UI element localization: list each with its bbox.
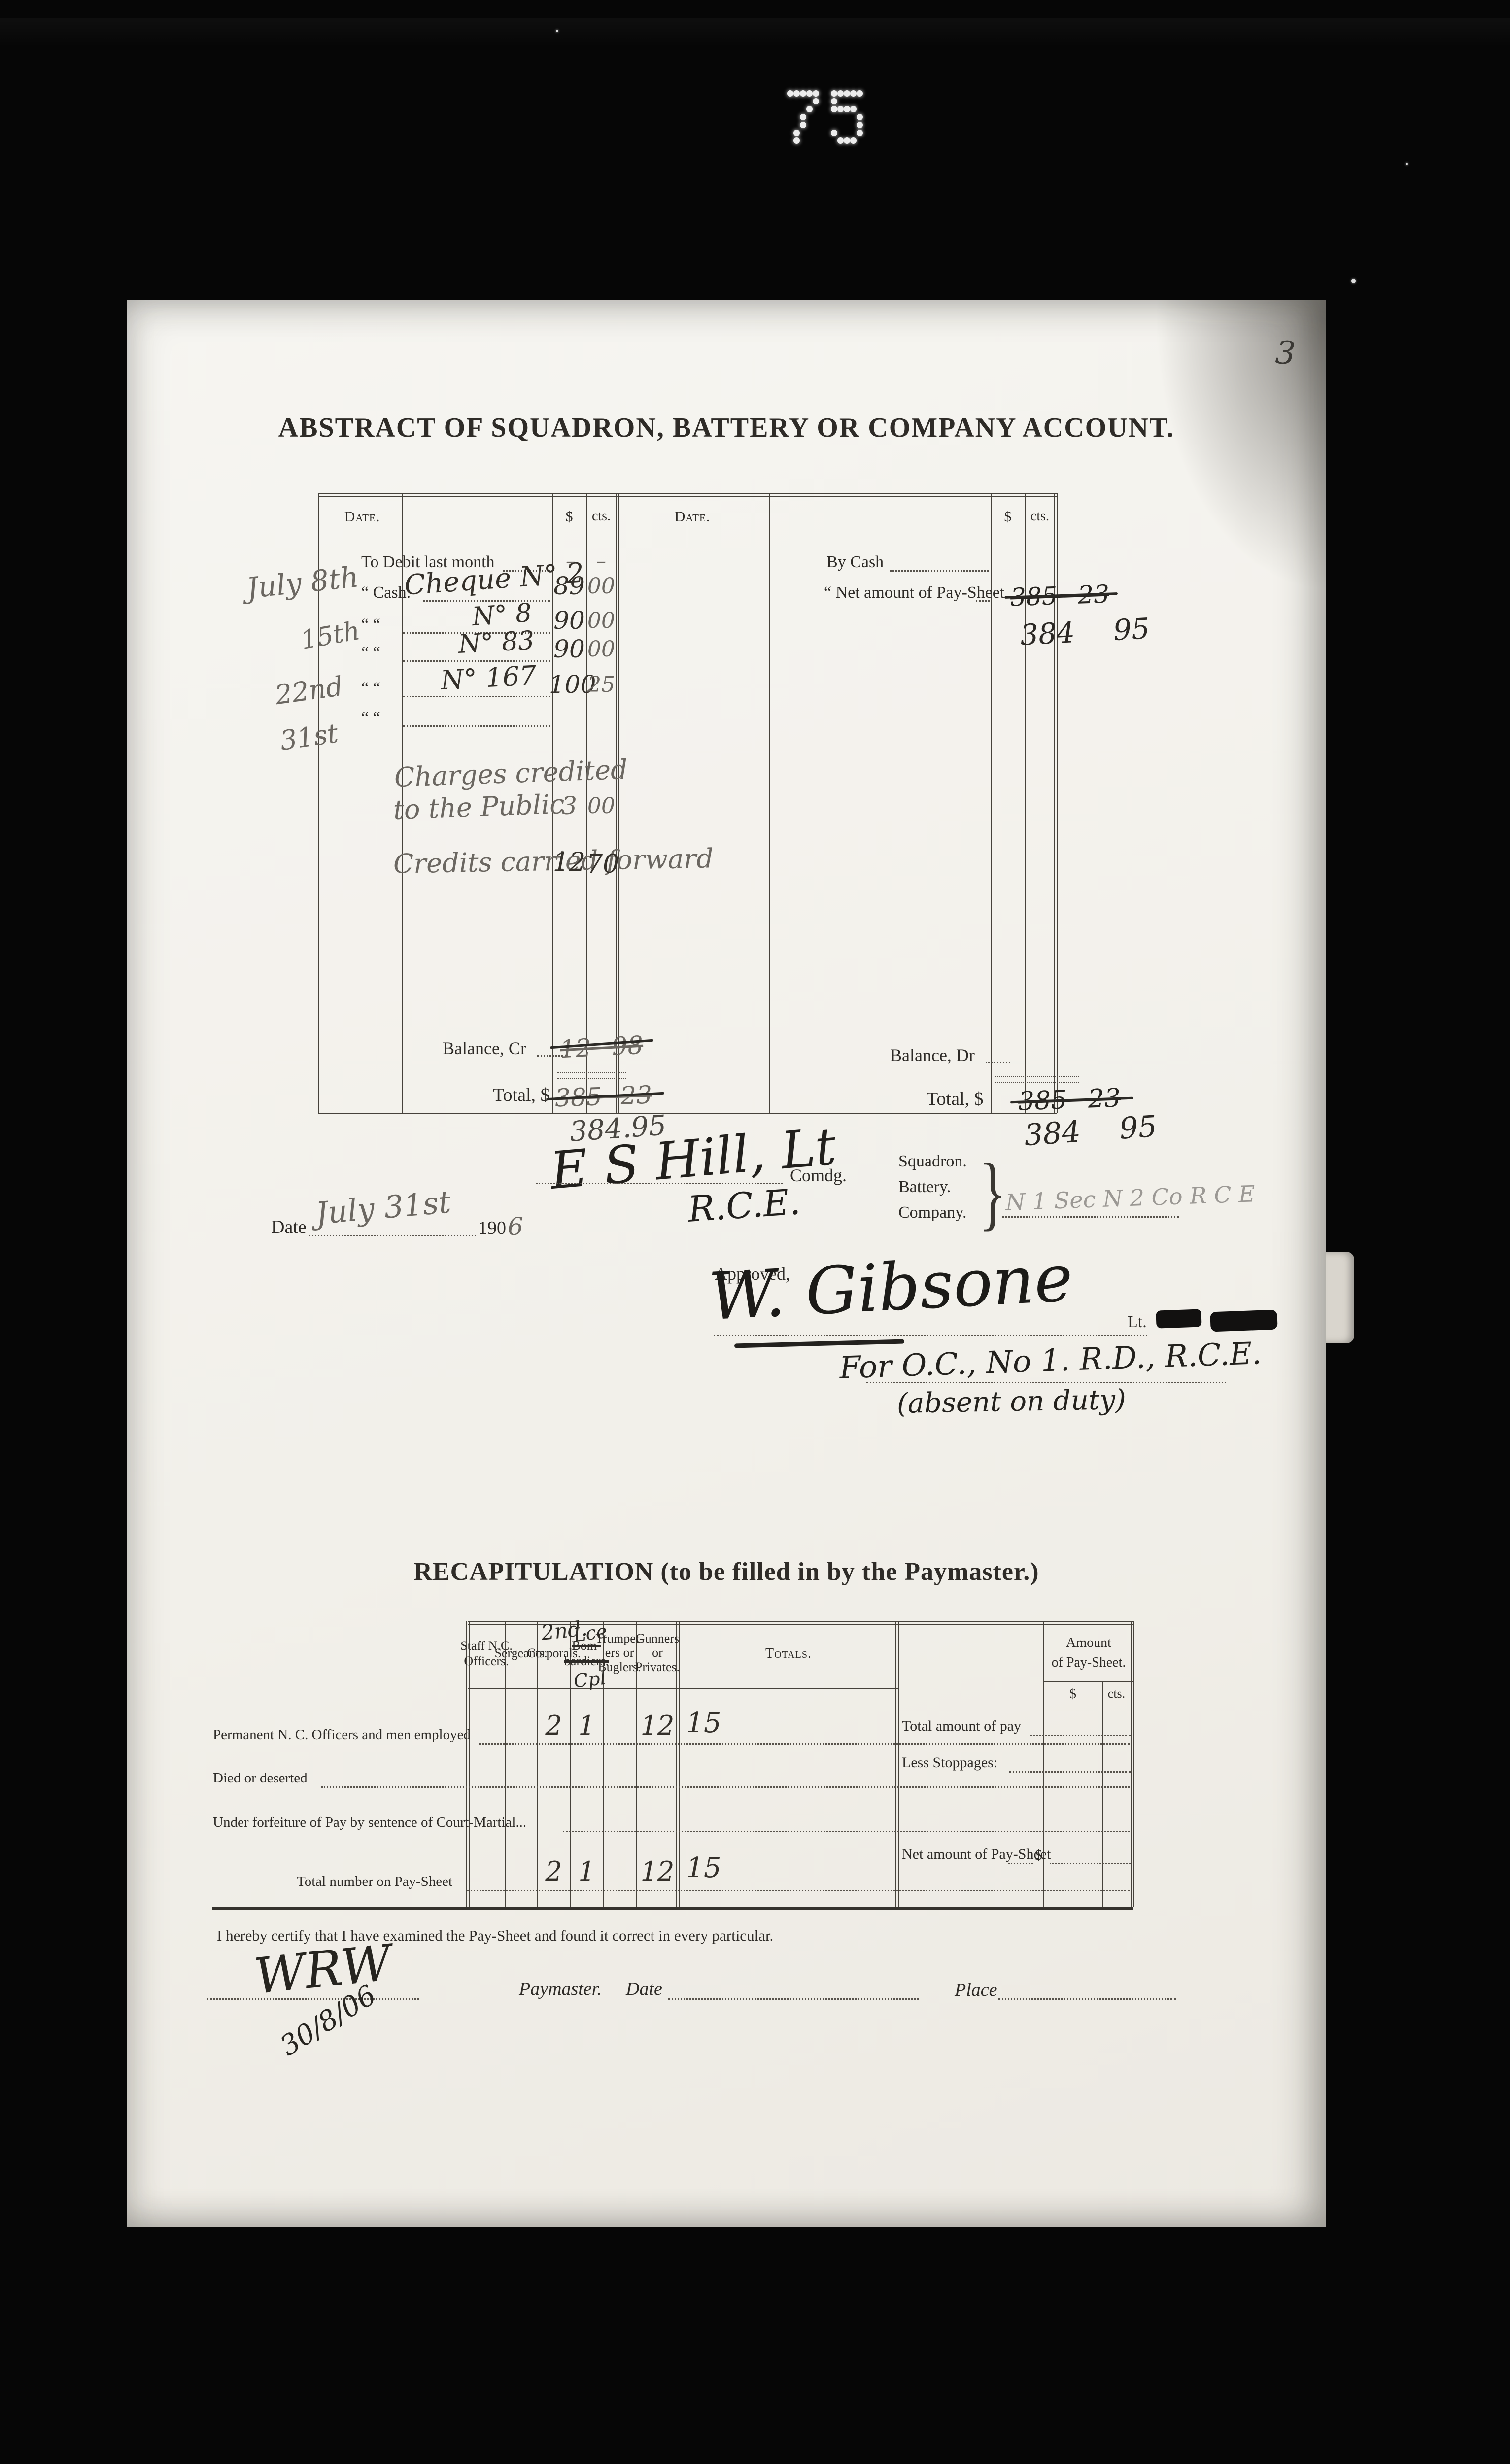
recap-row-label: Total number on Pay-Sheet [297, 1874, 452, 1890]
signature-line [714, 1335, 1147, 1336]
table-rule [1102, 1681, 1103, 1907]
leader-dots [1050, 1863, 1131, 1864]
recap-row-label: Under forfeiture of Pay by sentence of C… [213, 1814, 526, 1831]
signature-line [536, 1183, 783, 1184]
leader-dots [986, 1062, 1010, 1063]
leader-dots [403, 696, 550, 697]
recap-title: RECAPITULATION (to be filled in by the P… [127, 1557, 1326, 1586]
net-amount-label: Net amount of Pay-Sheet [902, 1846, 1051, 1863]
year-written: 6 [508, 1212, 523, 1241]
debit-row-dollar: 90 [552, 606, 586, 635]
total-pay-label: Total amount of pay [902, 1718, 1021, 1735]
total-rule [557, 1072, 626, 1079]
date-written: July 31st [314, 1184, 452, 1232]
entry-date: 15th [299, 616, 362, 655]
debit-row-label: “ Cash. [361, 583, 411, 602]
account-title: ABSTRACT OF SQUADRON, BATTERY OR COMPANY… [127, 412, 1326, 444]
charges-credited-line2: to the Public [393, 788, 565, 825]
debit-balance-label: Balance, Cr [443, 1038, 526, 1059]
leader-dots [1002, 1216, 1179, 1218]
debit-row-dollar: 89 [552, 572, 586, 600]
charges-cts: 00 [586, 793, 616, 819]
film-streak [0, 18, 1510, 47]
credit-balance-label: Balance, Dr [890, 1045, 975, 1065]
document-page: 3 ABSTRACT OF SQUADRON, BATTERY OR COMPA… [127, 300, 1326, 2227]
debit-row-label: “ “ [361, 644, 380, 662]
leader-dots [668, 1998, 919, 2000]
brace-label-battery: Battery. [898, 1178, 951, 1197]
brace-glyph: } [979, 1145, 1006, 1240]
debit-row-dollar: 90 [552, 635, 586, 663]
recap-row-label: Permanent N. C. Officers and men employe… [213, 1727, 471, 1743]
place-label: Place [955, 1979, 997, 2001]
entry-date: July 8th [245, 560, 360, 605]
leader-dots [890, 570, 989, 572]
unit-script: R.C.E. [686, 1181, 801, 1230]
table-rule [895, 1621, 896, 1907]
page-number: 3 [1274, 335, 1297, 372]
recap-value-corporals: 2 [537, 1856, 570, 1887]
total-rule [995, 1076, 1079, 1083]
table-rule [769, 493, 770, 1113]
debit-row-written: N° 83 [458, 626, 535, 659]
leader-dots [321, 1786, 1130, 1788]
recap-value-corporals: 2 [537, 1710, 570, 1741]
col-header-gunners: Gunners or Privates. [625, 1631, 689, 1674]
debit-row-label: “ “ [361, 616, 380, 634]
leader-dots [998, 1998, 1176, 2000]
leader-dots [309, 1235, 476, 1236]
leader-dots [563, 1831, 1130, 1832]
recap-row-label: Died or deserted [213, 1770, 308, 1786]
less-stoppages-label: Less Stoppages: [902, 1754, 997, 1771]
recap-value-bombardiers: 1 [570, 1710, 603, 1741]
brace-label-company: Company. [898, 1203, 967, 1222]
debit-row-written: N° 167 [440, 660, 537, 696]
approver-signature: W. Gibsone [707, 1240, 1074, 1335]
table-rule [1043, 1681, 1133, 1682]
table-rule [318, 1113, 1057, 1114]
debit-row-label: “ “ [361, 679, 380, 698]
debit-row-label: “ “ [361, 709, 380, 727]
recap-value-gunners: 12 [636, 1710, 679, 1741]
credit-total-label: Total, $ [927, 1088, 984, 1110]
debit-row-cts: 25 [586, 672, 616, 697]
leader-dots [866, 1382, 1226, 1383]
recap-value-gunners: 12 [636, 1856, 679, 1887]
amount-dollar-header: $ [1043, 1686, 1102, 1702]
charges-credited-line1: Charges credited [394, 754, 628, 793]
entry-date: 22nd [273, 671, 344, 711]
debit-row-cts: – [591, 550, 611, 573]
paymaster-label: Paymaster. [519, 1978, 602, 2000]
brace-label-squadron: Squadron. [898, 1152, 967, 1171]
debit-cts-header: cts. [586, 509, 616, 524]
film-speck [1406, 163, 1408, 165]
leader-dots [479, 1743, 1130, 1745]
credit-net-revised: 384 95 [1019, 612, 1150, 652]
debit-row-cts: 00 [586, 574, 616, 599]
absent-note: (absent on duty) [896, 1384, 1126, 1420]
film-speck [556, 30, 558, 32]
date-label: Date [271, 1216, 307, 1238]
col-header-totals: Totals. [754, 1646, 823, 1662]
amount-header: Amount of Pay-Sheet. [1044, 1633, 1133, 1673]
amount-cts-header: cts. [1102, 1686, 1131, 1701]
debit-row-cts: 00 [586, 608, 616, 633]
certify-text: I hereby certify that I have examined th… [217, 1927, 773, 1945]
leader-dots [467, 1890, 1130, 1891]
credit-cts-header: cts. [1025, 509, 1055, 524]
recap-value-totals: 15 [679, 1852, 728, 1884]
pen-stroke [734, 1339, 904, 1348]
redaction-mark [1156, 1309, 1201, 1328]
leader-dots [403, 725, 550, 727]
credit-net-label: “ Net amount of Pay-Sheet [824, 583, 1004, 602]
credit-date-header: Date. [663, 509, 722, 525]
film-speck [1351, 279, 1356, 283]
table-rule [616, 493, 617, 1113]
debit-total-label: Total, $ [493, 1084, 550, 1106]
charges-dollar: 3 [552, 791, 586, 820]
leader-dots [1008, 1863, 1033, 1864]
net-amount-dollar-sign: $ [1035, 1847, 1042, 1864]
credit-dollar-header: $ [991, 509, 1025, 525]
leader-dots [976, 600, 990, 602]
credits-cts: 70 [586, 850, 616, 879]
date-label: Date [626, 1978, 662, 2000]
table-rule [212, 1907, 1133, 1910]
credit-total-revised: 384 95 [1023, 1109, 1158, 1153]
frame-number [787, 90, 866, 149]
recap-value-totals: 15 [679, 1707, 728, 1739]
lance-written-bottom: Cpl [573, 1667, 607, 1692]
debit-row-dollar: 100 [549, 670, 588, 699]
leader-dots [1030, 1735, 1131, 1736]
redaction-mark [1210, 1310, 1277, 1332]
microfilm-frame: 3 ABSTRACT OF SQUADRON, BATTERY OR COMPA… [0, 0, 1510, 2464]
leader-dots [1009, 1771, 1131, 1773]
table-rule [318, 493, 1057, 494]
debit-date-header: Date. [333, 509, 392, 525]
debit-row-cts: 00 [586, 637, 616, 662]
entry-date: 31st [278, 718, 340, 756]
page-tab [1324, 1252, 1354, 1343]
debit-dollar-header: $ [552, 509, 586, 525]
table-rule [468, 1688, 898, 1689]
recap-value-bombardiers: 1 [570, 1856, 603, 1887]
unit-written: N 1 Sec N 2 Co R C E [1005, 1180, 1255, 1216]
credit-bycash-label: By Cash [826, 553, 884, 572]
rank-label: Lt. [1128, 1313, 1147, 1332]
credits-dollar: 12 [552, 848, 586, 877]
year-printed: 190 [478, 1217, 506, 1239]
table-rule [318, 496, 1057, 497]
